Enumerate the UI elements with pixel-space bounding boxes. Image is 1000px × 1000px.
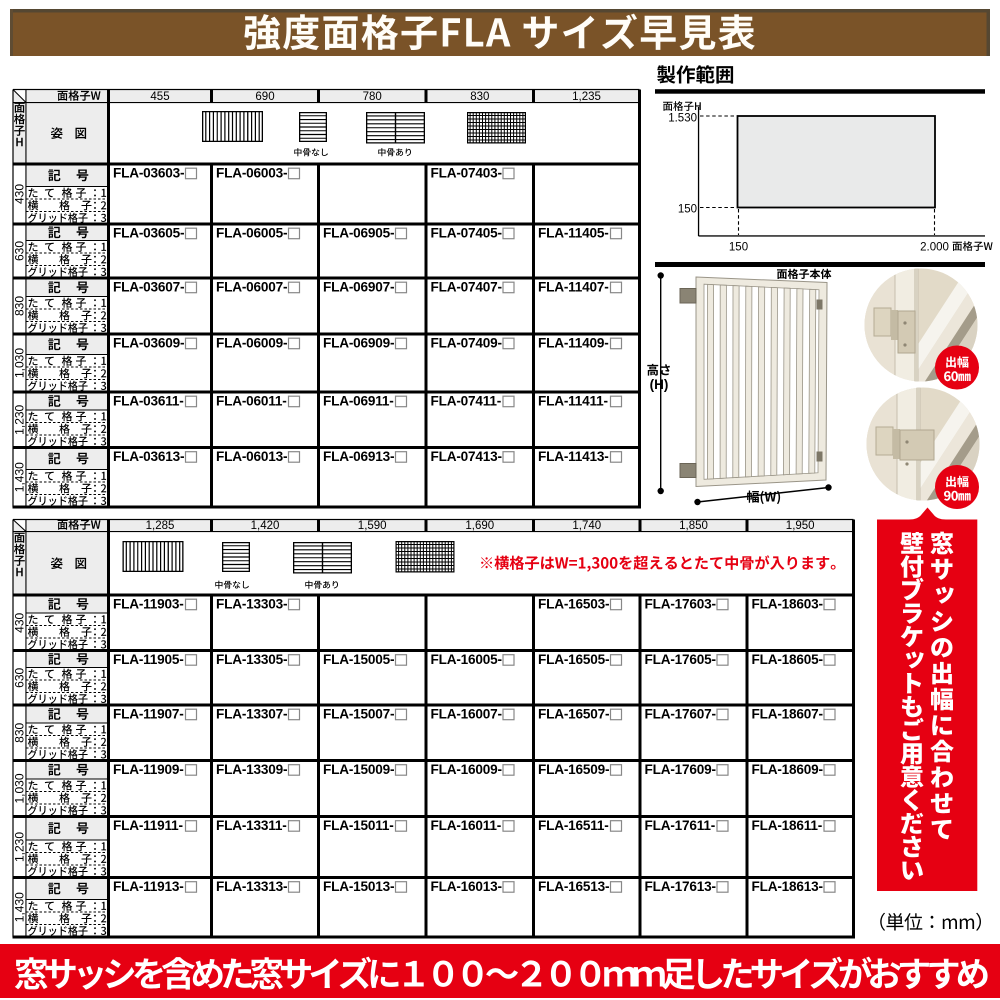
svg-text:FLA-06007-: FLA-06007- (216, 280, 287, 295)
svg-text:FLA-16503-: FLA-16503- (538, 597, 609, 612)
svg-text:FLA-16509-: FLA-16509- (538, 762, 609, 777)
svg-text:FLA-13311-: FLA-13311- (216, 818, 287, 833)
svg-text:1,950: 1,950 (786, 520, 815, 532)
svg-text:1.530: 1.530 (668, 113, 697, 125)
svg-text:FLA-17609-: FLA-17609- (645, 762, 716, 777)
svg-text:430: 430 (13, 184, 27, 204)
svg-text:FLA-16507-: FLA-16507- (538, 707, 609, 722)
svg-text:FLA-17613-: FLA-17613- (645, 879, 716, 894)
svg-text:FLA-17611-: FLA-17611- (645, 818, 716, 833)
svg-text:FLA-15007-: FLA-15007- (323, 707, 394, 722)
svg-text:FLA-11905-: FLA-11905- (113, 652, 184, 667)
svg-text:FLA-07405-: FLA-07405- (431, 226, 502, 241)
svg-text:690: 690 (255, 91, 274, 103)
svg-text:1,740: 1,740 (572, 520, 601, 532)
svg-text:FLA-03603-: FLA-03603- (113, 166, 184, 181)
svg-text:FLA-13303-: FLA-13303- (216, 597, 287, 612)
svg-text:FLA-11903-: FLA-11903- (113, 597, 184, 612)
svg-text:FLA-13305-: FLA-13305- (216, 652, 287, 667)
svg-text:FLA-07407-: FLA-07407- (431, 280, 502, 295)
svg-text:FLA-15013-: FLA-15013- (323, 879, 394, 894)
svg-text:2.000: 2.000 (920, 242, 949, 254)
svg-text:1,430: 1,430 (13, 892, 27, 922)
svg-text:FLA-03609-: FLA-03609- (113, 336, 184, 351)
svg-text:FLA-18605-: FLA-18605- (752, 652, 823, 667)
svg-text:FLA-15011-: FLA-15011- (323, 818, 394, 833)
svg-text:FLA-11911-: FLA-11911- (113, 818, 183, 833)
svg-text:1,430: 1,430 (13, 462, 27, 492)
svg-text:FLA-07409-: FLA-07409- (431, 336, 502, 351)
svg-text:FLA-03607-: FLA-03607- (113, 280, 184, 295)
svg-text:830: 830 (13, 722, 27, 742)
svg-text:FLA-03611-: FLA-03611- (113, 394, 184, 409)
svg-text:FLA-16007-: FLA-16007- (431, 707, 502, 722)
svg-text:1,235: 1,235 (572, 91, 601, 103)
svg-text:830: 830 (13, 296, 27, 316)
svg-text:1,285: 1,285 (146, 520, 175, 532)
svg-text:FLA-11411-: FLA-11411- (538, 394, 608, 409)
svg-text:FLA-16013-: FLA-16013- (431, 879, 502, 894)
svg-text:FLA-17605-: FLA-17605- (645, 652, 716, 667)
svg-text:1,030: 1,030 (13, 773, 27, 803)
svg-text:FLA-06911-: FLA-06911- (323, 394, 394, 409)
svg-text:FLA-18609-: FLA-18609- (752, 762, 823, 777)
svg-text:FLA-06907-: FLA-06907- (323, 280, 394, 295)
svg-text:FLA-18613-: FLA-18613- (752, 879, 823, 894)
svg-text:FLA-16009-: FLA-16009- (431, 762, 502, 777)
svg-text:1,230: 1,230 (13, 404, 27, 434)
svg-text:455: 455 (150, 91, 169, 103)
svg-text:1,690: 1,690 (465, 520, 494, 532)
svg-text:FLA-06009-: FLA-06009- (216, 336, 287, 351)
svg-text:FLA-06913-: FLA-06913- (323, 449, 394, 464)
svg-text:FLA-18611-: FLA-18611- (752, 818, 823, 833)
svg-text:FLA-16511-: FLA-16511- (538, 818, 609, 833)
svg-text:FLA-07413-: FLA-07413- (431, 449, 502, 464)
svg-text:FLA-11907-: FLA-11907- (113, 707, 184, 722)
svg-text:FLA-11413-: FLA-11413- (538, 449, 609, 464)
svg-text:630: 630 (13, 241, 27, 261)
svg-text:FLA-03605-: FLA-03605- (113, 226, 184, 241)
svg-text:FLA-17607-: FLA-17607- (645, 707, 716, 722)
svg-text:FLA-06003-: FLA-06003- (216, 166, 287, 181)
svg-text:FLA-16505-: FLA-16505- (538, 652, 609, 667)
svg-text:FLA-15005-: FLA-15005- (323, 652, 394, 667)
svg-text:FLA-11409-: FLA-11409- (538, 336, 609, 351)
svg-text:(H): (H) (650, 377, 669, 392)
svg-text:1,420: 1,420 (251, 520, 280, 532)
svg-text:1,030: 1,030 (13, 348, 27, 378)
svg-text:FLA-18603-: FLA-18603- (752, 597, 823, 612)
svg-text:FLA-06011-: FLA-06011- (216, 394, 287, 409)
svg-text:FLA-18607-: FLA-18607- (752, 707, 823, 722)
svg-text:FLA-16011-: FLA-16011- (431, 818, 502, 833)
svg-text:FLA-15009-: FLA-15009- (323, 762, 394, 777)
svg-text:150: 150 (678, 204, 697, 216)
svg-text:780: 780 (363, 91, 382, 103)
svg-text:FLA-16005-: FLA-16005- (431, 652, 502, 667)
svg-text:FLA-11909-: FLA-11909- (113, 762, 184, 777)
svg-text:FLA-03613-: FLA-03613- (113, 449, 184, 464)
svg-text:FLA-07411-: FLA-07411- (431, 394, 502, 409)
svg-text:1,850: 1,850 (679, 520, 708, 532)
svg-text:FLA-07403-: FLA-07403- (431, 166, 502, 181)
svg-text:430: 430 (13, 612, 27, 632)
svg-text:830: 830 (470, 91, 489, 103)
svg-text:1,230: 1,230 (13, 832, 27, 862)
svg-text:FLA-13309-: FLA-13309- (216, 762, 287, 777)
svg-text:150: 150 (729, 242, 748, 254)
svg-text:FLA-13313-: FLA-13313- (216, 879, 287, 894)
svg-text:FLA-13307-: FLA-13307- (216, 707, 287, 722)
svg-text:FLA-11913-: FLA-11913- (113, 879, 184, 894)
svg-text:630: 630 (13, 667, 27, 687)
svg-text:FLA-16513-: FLA-16513- (538, 879, 609, 894)
svg-text:FLA-17603-: FLA-17603- (645, 597, 716, 612)
svg-text:FLA-11405-: FLA-11405- (538, 226, 609, 241)
svg-text:1,590: 1,590 (358, 520, 387, 532)
svg-text:FLA-06013-: FLA-06013- (216, 449, 287, 464)
svg-text:FLA-06005-: FLA-06005- (216, 226, 287, 241)
svg-text:FLA-06909-: FLA-06909- (323, 336, 394, 351)
svg-text:FLA-06905-: FLA-06905- (323, 226, 394, 241)
svg-text:FLA-11407-: FLA-11407- (538, 280, 609, 295)
